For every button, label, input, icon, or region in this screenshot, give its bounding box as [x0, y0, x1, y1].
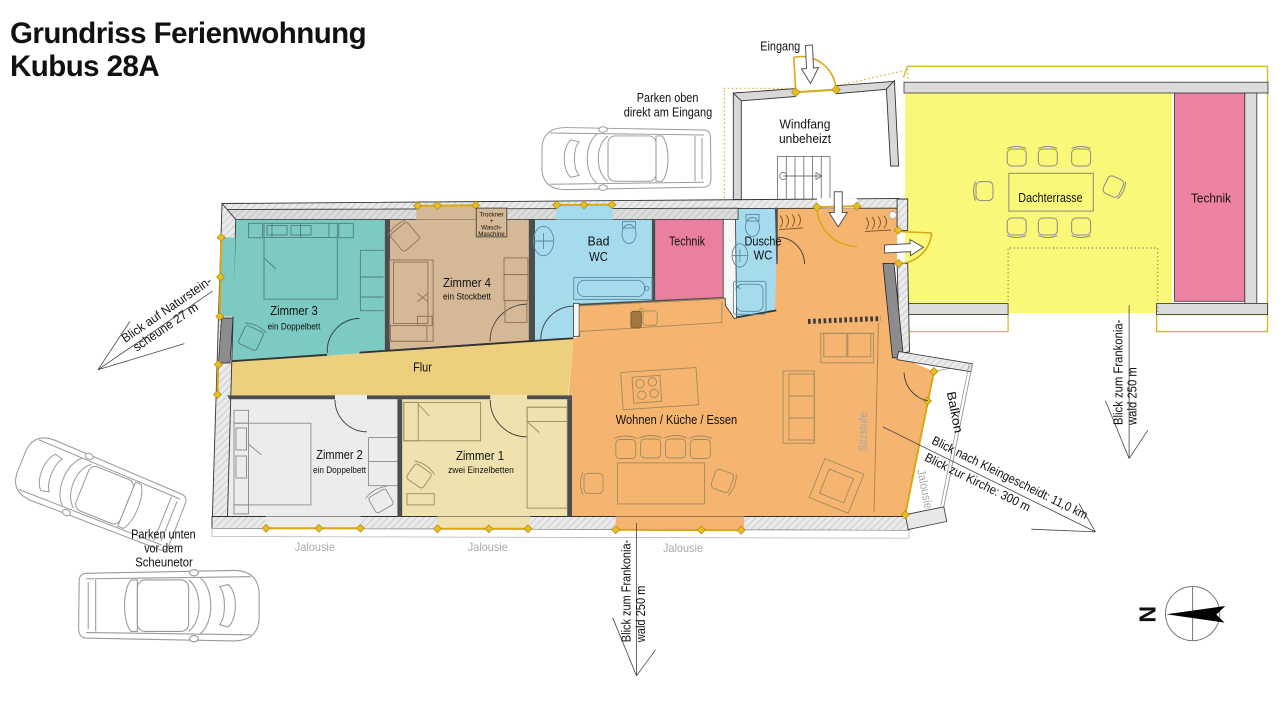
svg-text:Jalousie: Jalousie — [663, 541, 703, 555]
svg-text:Bad: Bad — [588, 235, 610, 249]
svg-text:Scheunetor: Scheunetor — [135, 556, 192, 570]
svg-text:unbeheizt: unbeheizt — [779, 132, 831, 146]
svg-text:Technik: Technik — [669, 235, 706, 249]
svg-text:zwei Einzelbetten: zwei Einzelbetten — [448, 465, 514, 476]
svg-text:Zimmer 1: Zimmer 1 — [456, 449, 504, 463]
svg-text:Parken oben: Parken oben — [637, 91, 699, 105]
svg-text:Flur: Flur — [413, 361, 432, 375]
svg-text:Zimmer 3: Zimmer 3 — [270, 304, 318, 318]
svg-text:Dachterrasse: Dachterrasse — [1018, 191, 1082, 205]
svg-text:N: N — [1135, 606, 1161, 623]
svg-text:Kubus 28A: Kubus 28A — [10, 50, 159, 83]
svg-text:Zimmer 4: Zimmer 4 — [443, 276, 491, 290]
svg-text:vor dem: vor dem — [144, 542, 183, 556]
svg-text:ein Doppelbett: ein Doppelbett — [268, 322, 321, 333]
svg-text:wald 250 m: wald 250 m — [1126, 367, 1140, 426]
svg-text:Windfang: Windfang — [780, 118, 831, 132]
svg-text:Jalousie: Jalousie — [468, 540, 508, 554]
svg-text:ein Doppelbett: ein Doppelbett — [313, 465, 366, 476]
svg-text:wald 250 m: wald 250 m — [634, 586, 648, 643]
svg-text:Jalousie: Jalousie — [295, 540, 335, 554]
svg-text:Maschine: Maschine — [478, 231, 505, 238]
svg-text:Dusche: Dusche — [745, 235, 782, 249]
svg-text:Zimmer 2: Zimmer 2 — [316, 448, 363, 462]
svg-text:Sitzstufe: Sitzstufe — [856, 412, 870, 452]
svg-text:Wohnen / Küche / Essen: Wohnen / Küche / Essen — [616, 413, 737, 427]
svg-text:Technik: Technik — [1191, 192, 1232, 206]
svg-text:Blick zum Frankonia-: Blick zum Frankonia- — [1112, 320, 1126, 425]
svg-text:Blick zum Frankonia-: Blick zum Frankonia- — [620, 540, 634, 642]
svg-text:ein Stockbett: ein Stockbett — [443, 292, 491, 303]
svg-text:direkt am Eingang: direkt am Eingang — [624, 106, 712, 120]
svg-text:WC: WC — [754, 249, 773, 263]
svg-text:Parken unten: Parken unten — [131, 528, 196, 542]
svg-text:Eingang: Eingang — [760, 40, 800, 54]
svg-text:WC: WC — [589, 250, 608, 264]
svg-text:Grundriss Ferienwohnung: Grundriss Ferienwohnung — [10, 17, 366, 50]
